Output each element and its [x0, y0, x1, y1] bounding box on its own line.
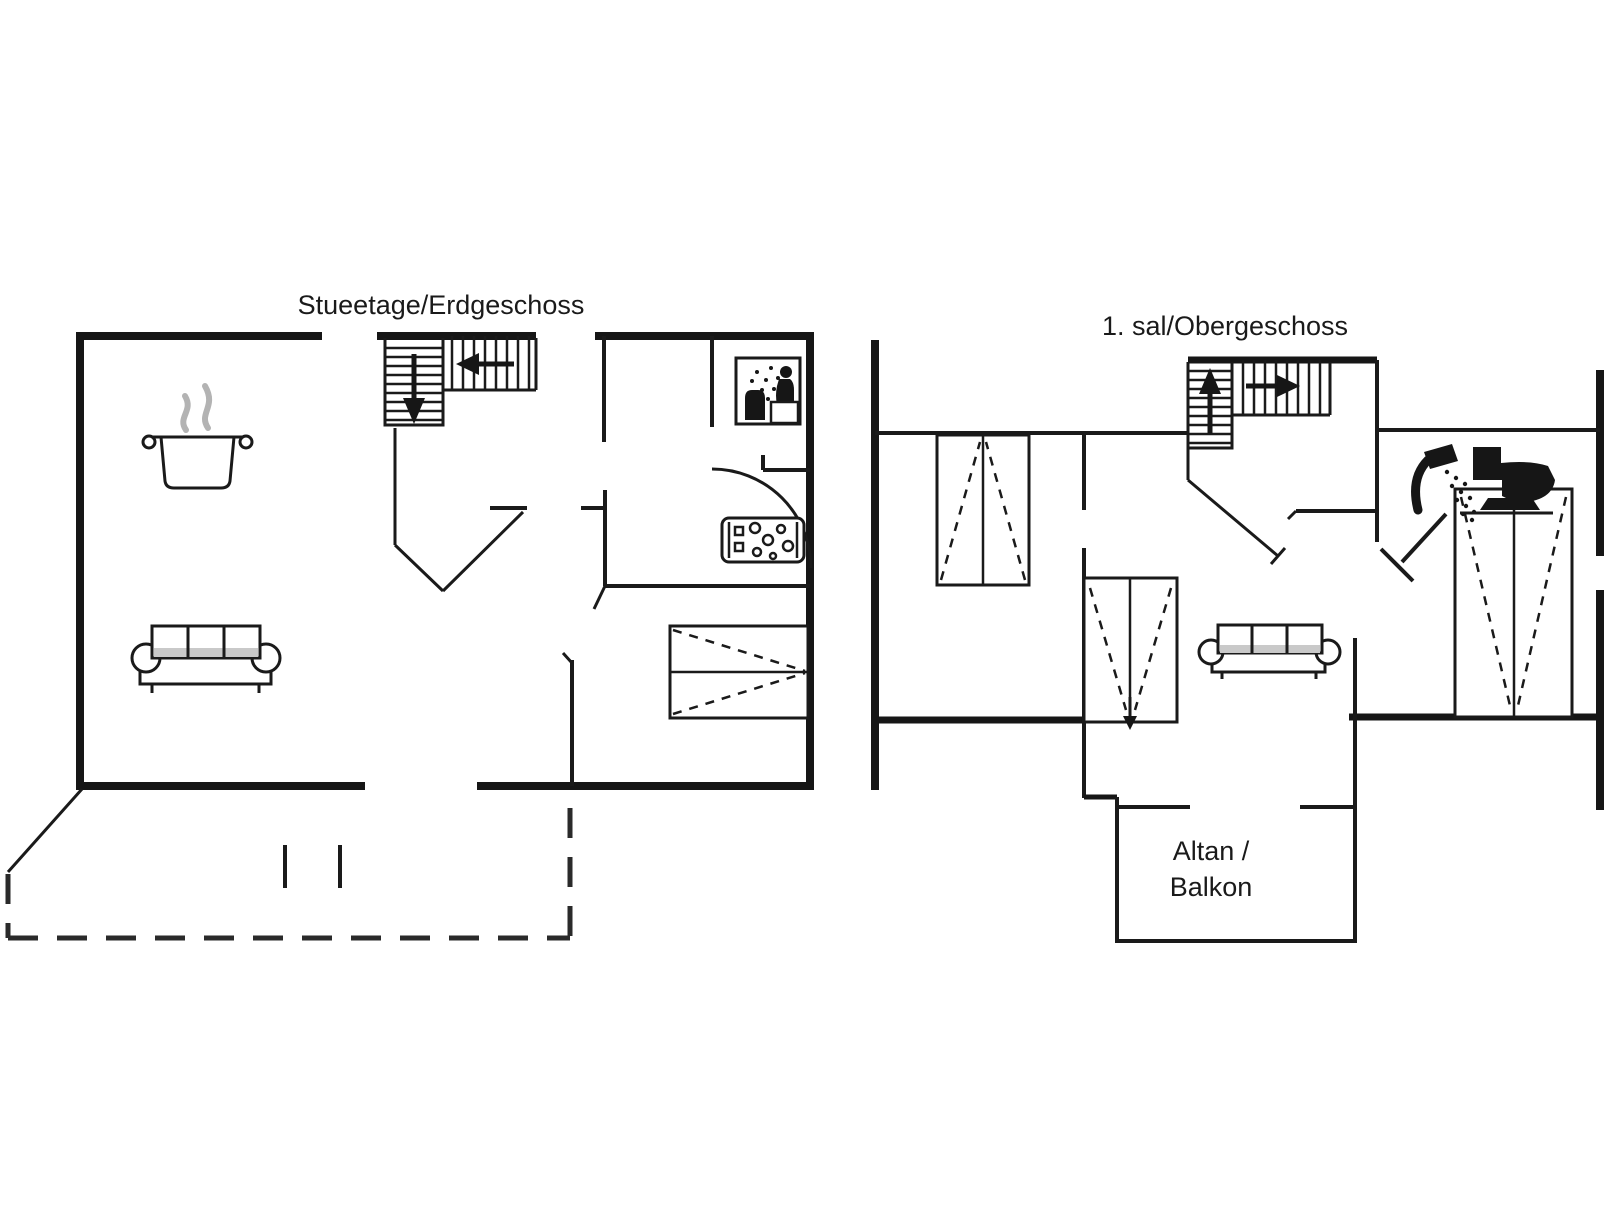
balcony-label-line1: Altan / — [1173, 836, 1250, 866]
stairs-down-icon — [385, 336, 536, 591]
balcony-outline — [1117, 797, 1355, 941]
floorplan-svg: Stueetage/Erdgeschoss — [0, 0, 1606, 1205]
steam-icon — [183, 386, 209, 430]
floorplan-page: Stueetage/Erdgeschoss — [0, 0, 1606, 1205]
sofa-icon — [1199, 625, 1340, 679]
sofa-icon — [132, 626, 280, 693]
terrace-dashed-outline — [8, 789, 570, 938]
stairs-down-arrow-icon — [403, 354, 425, 424]
door-swing-icon — [1381, 514, 1446, 581]
wardrobe-v-icon — [1084, 578, 1177, 730]
balcony-label-line2: Balkon — [1170, 872, 1253, 902]
first-floor-title: 1. sal/Obergeschoss — [1102, 311, 1348, 341]
whirlpool-icon — [722, 518, 804, 562]
ground-floor-plan: Stueetage/Erdgeschoss — [8, 290, 814, 938]
sliding-door-marks — [285, 845, 340, 888]
shower-cabin-icon — [736, 358, 800, 424]
wardrobe-v2-icon — [1455, 489, 1572, 717]
cooking-pot-icon — [143, 386, 252, 488]
stairs-up-icon — [1188, 360, 1330, 448]
first-floor-plan: 1. sal/Obergeschoss — [871, 311, 1604, 941]
wardrobe-icon — [670, 626, 808, 718]
ground-floor-title: Stueetage/Erdgeschoss — [298, 290, 585, 320]
wardrobe-a-icon — [937, 435, 1029, 585]
